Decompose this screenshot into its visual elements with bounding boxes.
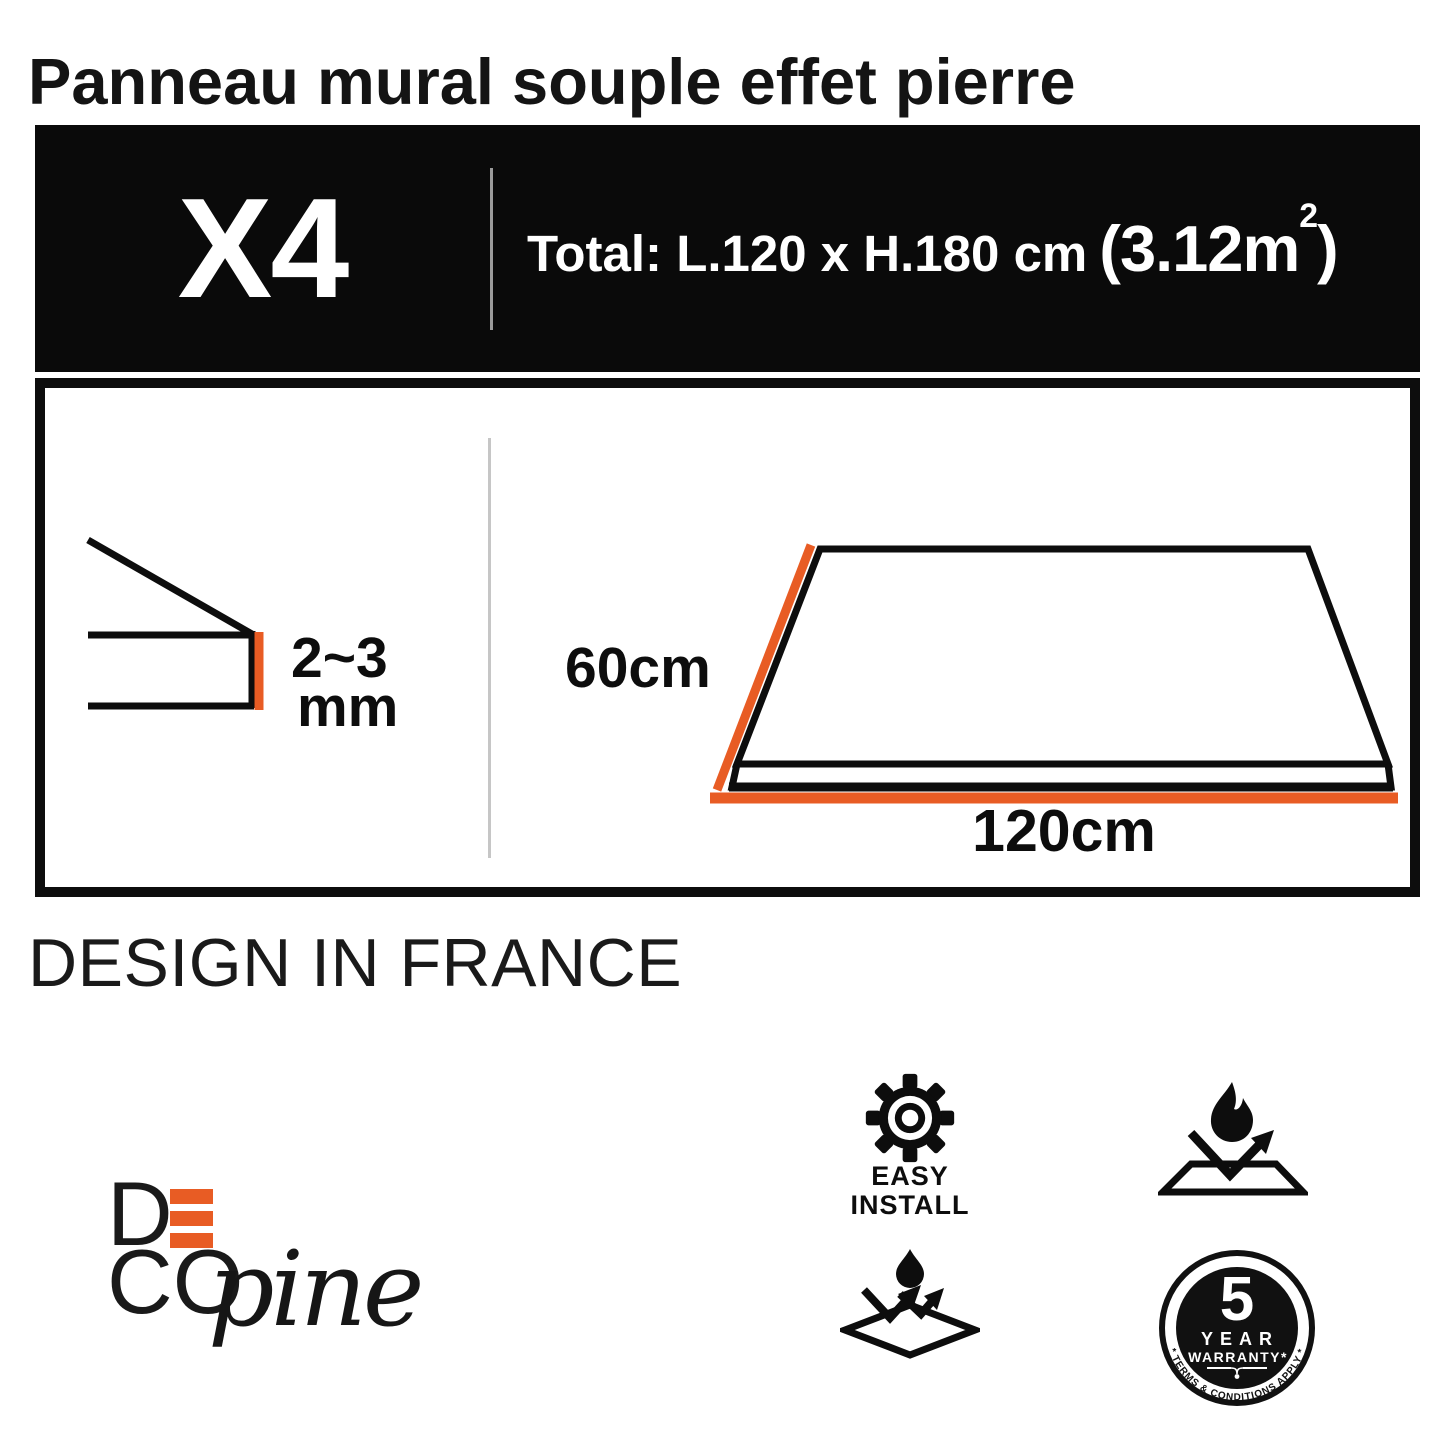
thickness-label: 2~3 mm <box>291 634 398 732</box>
total-column: Total: L.120 x H.180 cm(3.12m2) <box>493 125 1420 372</box>
warranty-number: 5 <box>1220 1265 1254 1334</box>
total-dimensions-text: Total: L.120 x H.180 cm <box>527 225 1087 282</box>
panel-width-label: 120cm <box>914 802 1214 861</box>
dimension-diagrams-box: 2~3 mm 60cm 120cm <box>35 378 1420 897</box>
height-edge-highlight <box>717 545 811 790</box>
paren-close: ) <box>1317 212 1338 285</box>
panel-height-label: 60cm <box>565 640 711 697</box>
gear-icon <box>864 1072 956 1164</box>
water-resistant-icon <box>840 1244 980 1366</box>
paren-open: ( <box>1099 212 1120 285</box>
thickness-unit: mm <box>291 683 398 732</box>
page-title: Panneau mural souple effet pierre <box>28 44 1076 119</box>
brand-script: pine <box>208 1237 420 1341</box>
design-origin-label: DESIGN IN FRANCE <box>28 924 682 1002</box>
quantity-column: X4 <box>35 125 490 372</box>
product-infographic: Panneau mural souple effet pierre X4 Tot… <box>0 0 1445 1445</box>
total-dimensions: Total: L.120 x H.180 cm(3.12m2) <box>527 216 1338 281</box>
warranty-year: YEAR <box>1201 1329 1279 1349</box>
warranty-drop <box>1235 1374 1240 1379</box>
area-superscript: 2 <box>1299 197 1317 235</box>
spec-banner: X4 Total: L.120 x H.180 cm(3.12m2) <box>35 125 1420 372</box>
easy-install-caption: EASY INSTALL <box>810 1162 1010 1220</box>
quantity-label: X4 <box>178 178 348 320</box>
warranty-badge: 5 YEAR WARRANTY* * TERMS & CONDITIONS AP… <box>1157 1248 1317 1408</box>
panel-size-diagram <box>729 549 1393 787</box>
total-area: (3.12m2) <box>1099 212 1337 285</box>
area-value: 3.12m <box>1120 212 1299 285</box>
brand-bar <box>170 1189 213 1204</box>
easy-install-line1: EASY <box>810 1162 1010 1191</box>
panel-thickness-diagram <box>88 540 254 708</box>
brand-bar <box>170 1211 213 1226</box>
easy-install-line2: INSTALL <box>810 1191 1010 1220</box>
warranty-word: WARRANTY* <box>1188 1349 1288 1365</box>
fire-resistant-icon <box>1158 1076 1308 1198</box>
